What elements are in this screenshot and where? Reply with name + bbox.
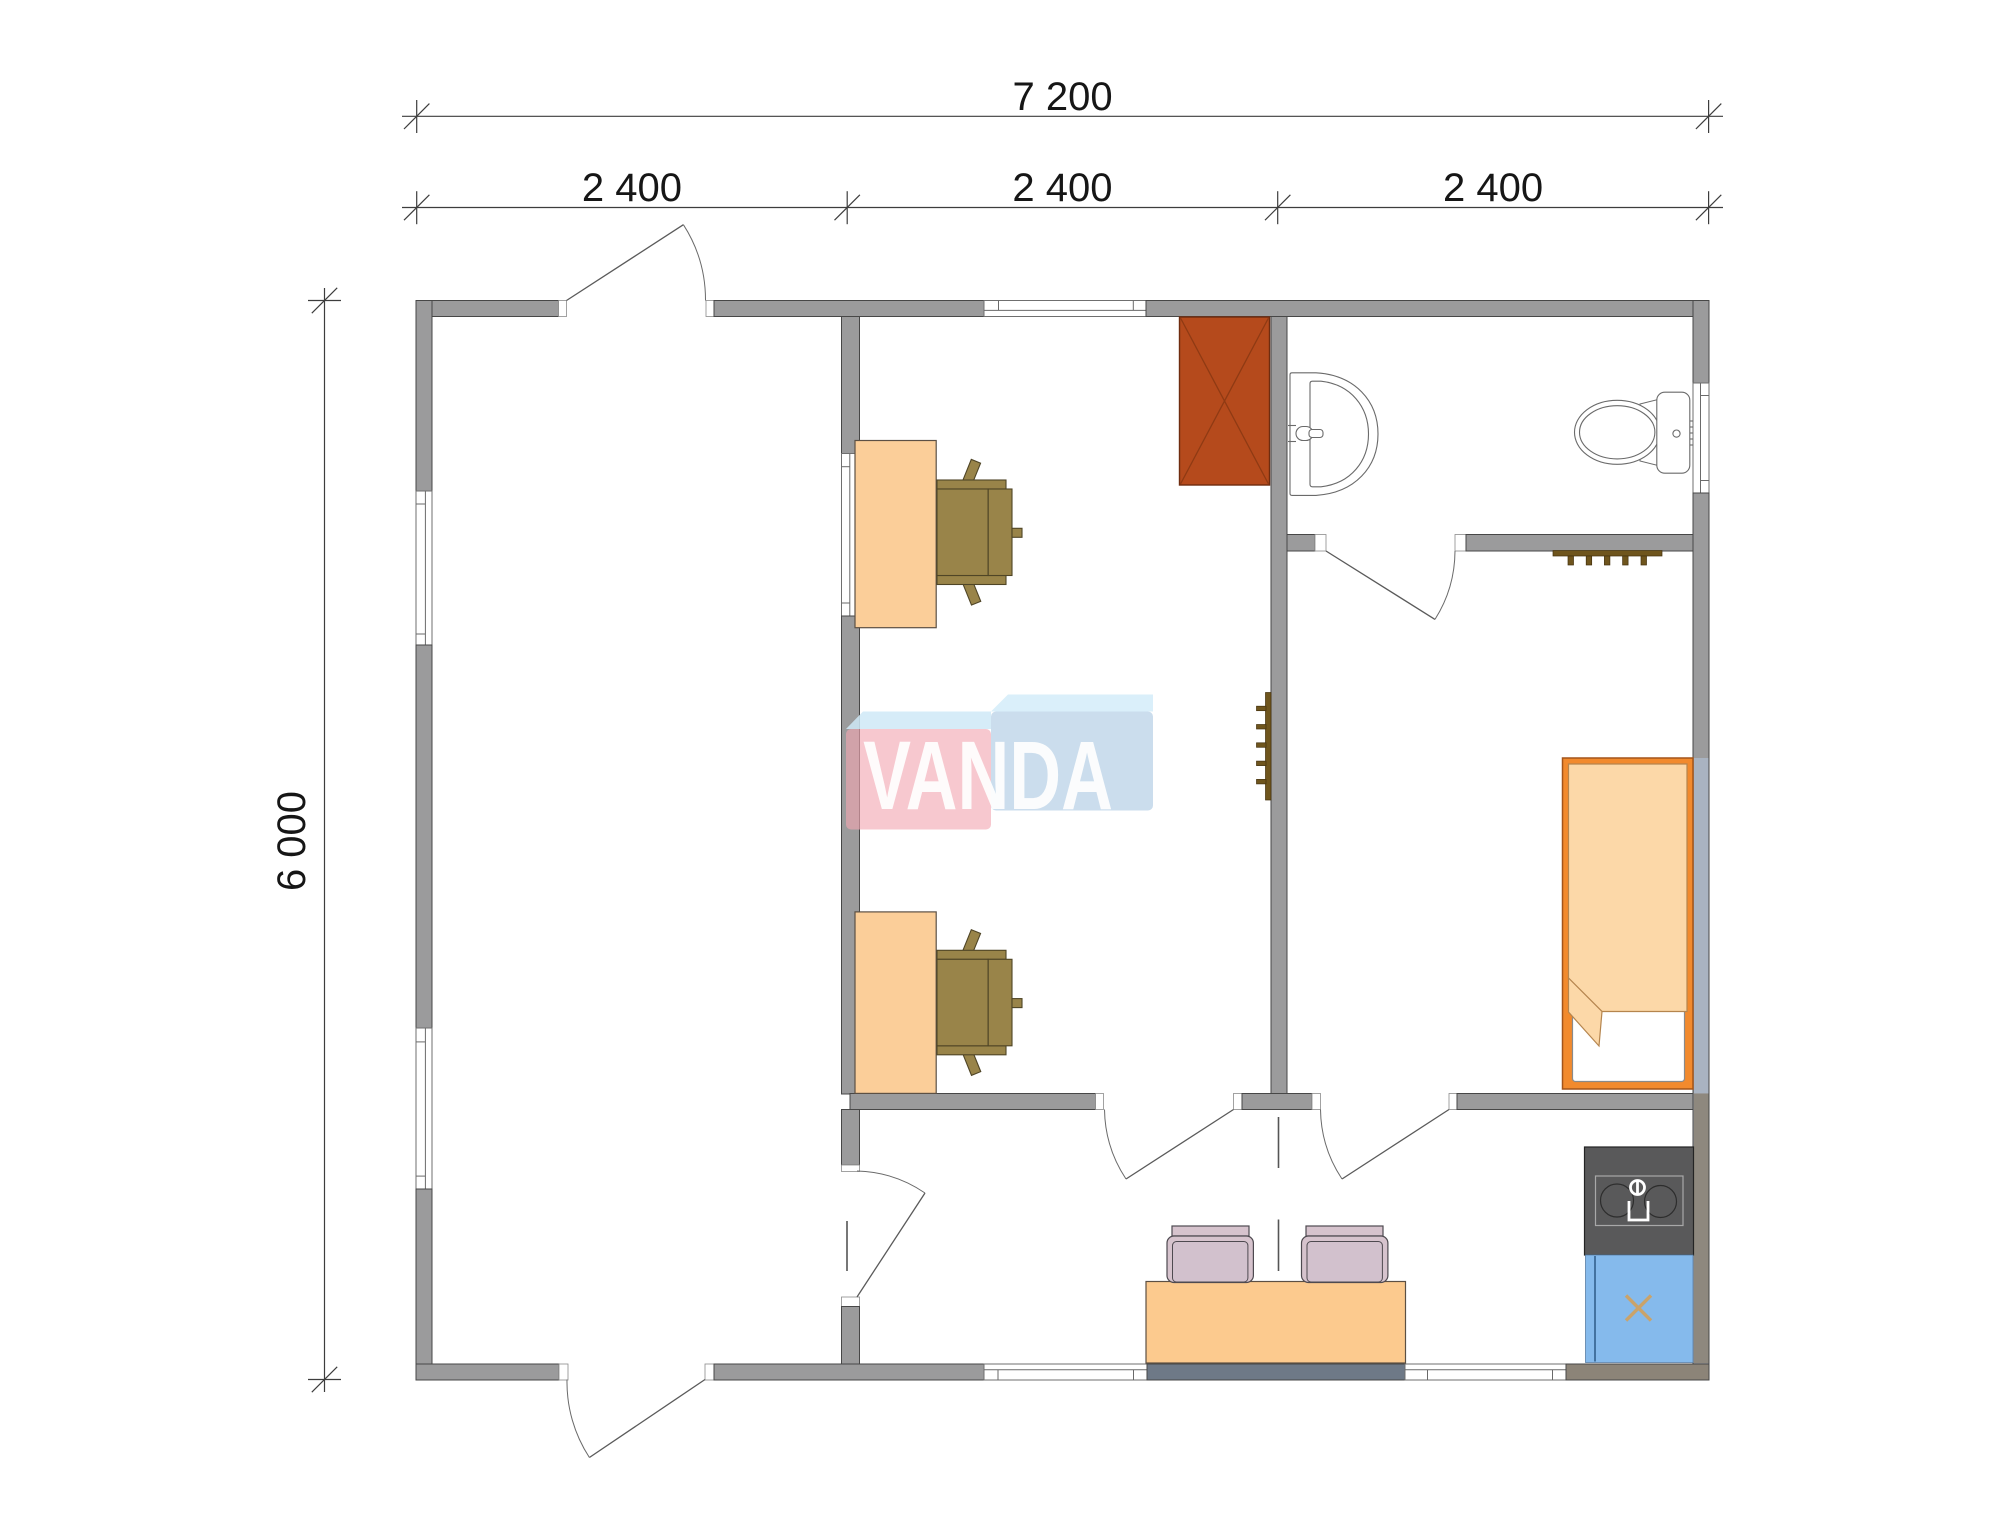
- svg-text:7 200: 7 200: [1013, 75, 1113, 119]
- svg-text:VANDA: VANDA: [863, 723, 1113, 831]
- svg-text:2 400: 2 400: [1443, 166, 1543, 210]
- svg-text:2 400: 2 400: [582, 166, 682, 210]
- svg-text:6 000: 6 000: [270, 791, 314, 891]
- svg-text:2 400: 2 400: [1012, 166, 1112, 210]
